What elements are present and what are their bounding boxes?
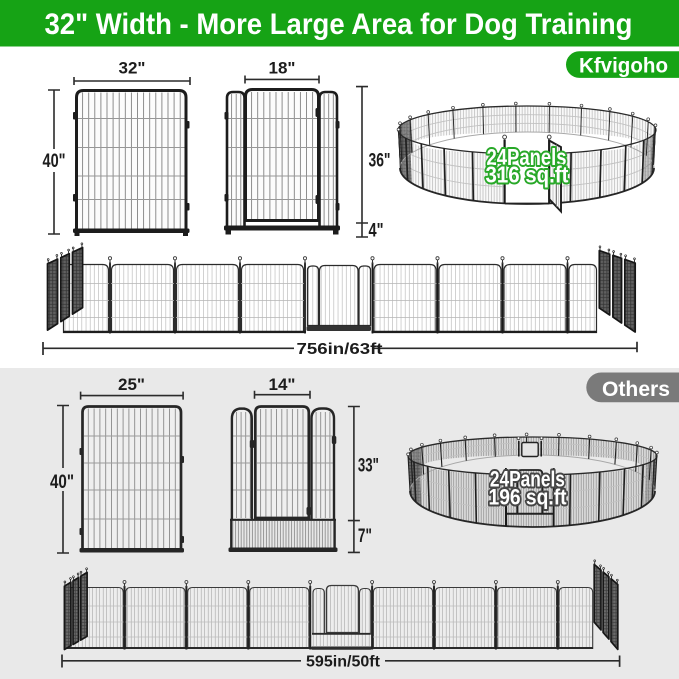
svg-text:Kfvigoho: Kfvigoho	[579, 54, 668, 77]
svg-text:18": 18"	[269, 59, 296, 78]
svg-text:196 sq.ft: 196 sq.ft	[489, 485, 568, 510]
svg-text:40": 40"	[50, 471, 74, 493]
svg-text:33": 33"	[358, 455, 379, 477]
svg-text:32" Width - More Large Area fo: 32" Width - More Large Area for Dog Trai…	[45, 8, 633, 41]
svg-text:36": 36"	[369, 150, 391, 172]
svg-text:595in/50ft: 595in/50ft	[306, 654, 380, 671]
svg-text:32": 32"	[119, 59, 146, 78]
svg-text:14": 14"	[269, 375, 296, 394]
svg-text:25": 25"	[118, 375, 145, 394]
svg-text:7": 7"	[358, 526, 372, 547]
svg-text:Others: Others	[602, 378, 670, 401]
svg-text:756in/63ft: 756in/63ft	[297, 341, 384, 358]
svg-text:316 sq.ft: 316 sq.ft	[486, 162, 569, 188]
svg-text:4": 4"	[369, 220, 384, 242]
svg-text:40": 40"	[43, 150, 66, 172]
